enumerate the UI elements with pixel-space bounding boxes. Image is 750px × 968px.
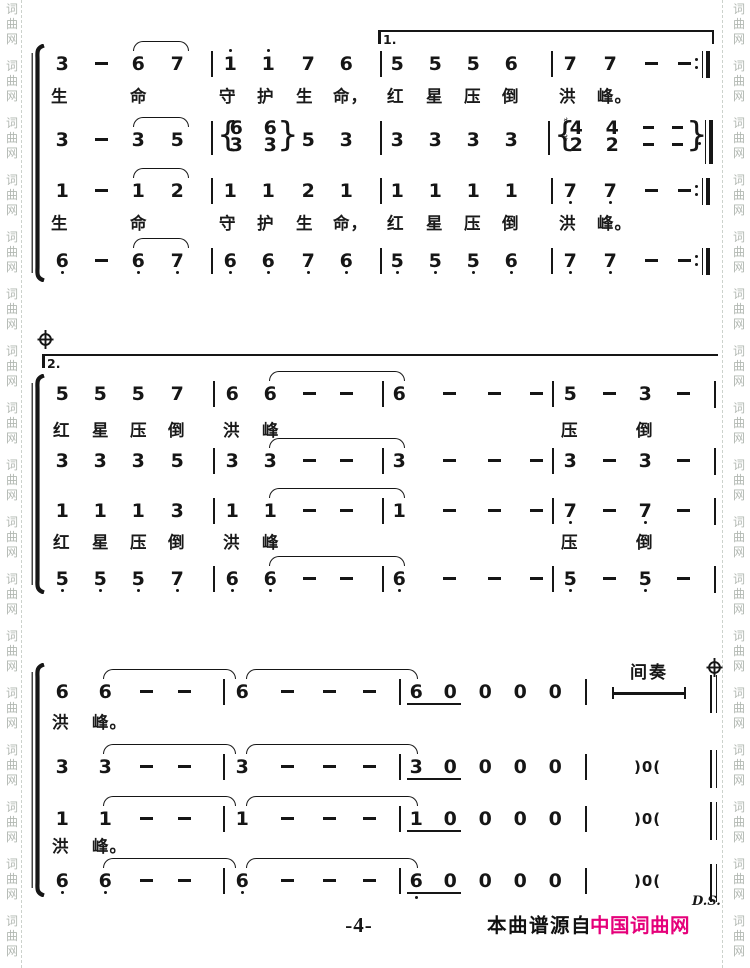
duration-dash — [323, 879, 336, 882]
note: 6 — [503, 252, 519, 271]
barline — [382, 448, 384, 474]
barline — [399, 754, 401, 780]
barline — [548, 121, 550, 155]
note: 3 — [54, 452, 70, 471]
chord-brace: } — [277, 118, 299, 152]
repeat-thick-bar — [709, 120, 714, 164]
final-thin-barline — [714, 448, 716, 475]
note: 7 — [562, 252, 578, 271]
volta-hook-left — [42, 354, 45, 368]
duration-dash — [323, 817, 336, 820]
note: 6 — [262, 570, 278, 589]
duration-dash — [645, 62, 658, 65]
duration-dash — [140, 817, 153, 820]
note: 1 — [465, 182, 481, 201]
note: 7 — [169, 570, 185, 589]
note: 6 — [503, 55, 519, 74]
tie-slur — [133, 238, 189, 248]
note: 6 — [224, 385, 240, 404]
barline — [399, 868, 401, 894]
interlude-cap — [684, 687, 686, 699]
duration-dash — [95, 62, 108, 65]
volta-bracket-line — [378, 30, 714, 32]
duration-dash — [303, 509, 316, 512]
note: 3 — [130, 131, 146, 150]
duration-dash — [363, 690, 376, 693]
octave-dot-below — [415, 896, 418, 899]
note: 0 — [512, 683, 528, 702]
note: 5 — [130, 385, 146, 404]
lyric-syllable: 压 — [561, 423, 579, 440]
note: 0 — [477, 872, 493, 891]
lyric-syllable: 压 — [464, 216, 482, 233]
note: 0 — [442, 872, 458, 891]
note: 3 — [338, 131, 354, 150]
note: 3 — [54, 55, 70, 74]
note: 6 — [224, 570, 240, 589]
barline — [552, 448, 554, 474]
duration-dash — [178, 765, 191, 768]
barline — [380, 51, 382, 77]
note: 3 — [562, 452, 578, 471]
note: 1 — [389, 182, 405, 201]
barline — [223, 806, 225, 832]
lyric-syllable: 峰。 — [597, 216, 632, 233]
note: 6 — [130, 252, 146, 271]
barline — [585, 806, 587, 832]
lyric-syllable: 红 — [387, 89, 405, 106]
note: 5 — [169, 452, 185, 471]
barline — [211, 248, 213, 274]
note: 1 — [234, 810, 250, 829]
note: 5 — [465, 55, 481, 74]
duration-dash — [323, 765, 336, 768]
duration-dash — [303, 459, 316, 462]
note: 1 — [260, 55, 276, 74]
octave-dot-below — [61, 891, 64, 894]
lyric-syllable: 红 — [53, 535, 71, 552]
lyric-syllable: 命 — [130, 216, 148, 233]
note: 5 — [637, 570, 653, 589]
note: 1 — [408, 810, 424, 829]
note: 0 — [442, 758, 458, 777]
octave-dot-below — [61, 589, 64, 592]
note: 3 — [465, 131, 481, 150]
octave-dot-below — [231, 589, 234, 592]
repeat-thick-bar — [706, 248, 711, 275]
note: 5 — [130, 570, 146, 589]
note: 1 — [222, 55, 238, 74]
note: 1 — [130, 182, 146, 201]
final-thin-barline — [714, 566, 716, 593]
lyric-syllable: 峰 — [262, 535, 280, 552]
note: 7 — [300, 55, 316, 74]
note: 3 — [54, 131, 70, 150]
note: 1 — [92, 502, 108, 521]
lyric-syllable: 压 — [561, 535, 579, 552]
tie-slur — [133, 168, 189, 178]
repeat-thin-bar — [702, 51, 704, 78]
note: 1 — [503, 182, 519, 201]
lyric-syllable: 星 — [92, 535, 110, 552]
note: 3 — [262, 452, 278, 471]
repeat-thick-bar — [706, 51, 711, 78]
barline — [551, 178, 553, 204]
duration-dash — [140, 879, 153, 882]
note: 6 — [54, 683, 70, 702]
tie-slur — [269, 438, 405, 448]
barline — [552, 381, 554, 407]
tie-slur — [246, 796, 418, 806]
tie-slur — [103, 744, 236, 754]
barline — [551, 248, 553, 274]
duration-dash — [488, 577, 501, 580]
barline — [399, 679, 401, 705]
lyric-syllable: 压 — [130, 535, 148, 552]
repeat-thin-bar — [702, 178, 704, 205]
duration-dash — [323, 690, 336, 693]
barline — [552, 498, 554, 524]
note: 3 — [92, 452, 108, 471]
note: 6 — [338, 252, 354, 271]
note: 0 — [512, 810, 528, 829]
score: 1.3671176555677生命守护生命，红星压倒洪峰。335{6363}53… — [0, 0, 750, 968]
duration-dash — [643, 143, 654, 146]
duration-dash — [340, 392, 353, 395]
note: 6 — [97, 683, 113, 702]
tie-slur — [133, 117, 189, 127]
note: 5 — [389, 252, 405, 271]
note: 7 — [562, 55, 578, 74]
octave-dot-below — [434, 271, 437, 274]
barline — [213, 498, 215, 524]
octave-dot-below — [609, 201, 612, 204]
duration-dash — [95, 189, 108, 192]
note: 7 — [637, 502, 653, 521]
duration-dash — [677, 392, 690, 395]
duration-dash — [443, 509, 456, 512]
note: 7 — [300, 252, 316, 271]
tie-slur — [269, 556, 405, 566]
note: 5 — [54, 385, 70, 404]
duration-dash — [443, 392, 456, 395]
repeat-dot — [695, 58, 698, 61]
note: 0 — [547, 872, 563, 891]
duration-dash — [140, 765, 153, 768]
note: 7 — [169, 55, 185, 74]
barline — [211, 51, 213, 77]
lyric-syllable: 生 — [51, 216, 69, 233]
note: 3 — [97, 758, 113, 777]
octave-dot-below — [99, 589, 102, 592]
note: 0 — [477, 683, 493, 702]
duration-dash — [678, 189, 691, 192]
note: 0 — [547, 758, 563, 777]
note: 2 — [300, 182, 316, 201]
note: 3 — [389, 131, 405, 150]
note: 5 — [92, 570, 108, 589]
octave-dot-below — [569, 271, 572, 274]
lyric-syllable: 洪 — [223, 535, 241, 552]
lyric-syllable: 洪 — [52, 839, 70, 856]
octave-dot-below — [609, 271, 612, 274]
lyric-syllable: 倒 — [168, 423, 186, 440]
lyric-syllable: 护 — [257, 89, 275, 106]
lyric-syllable: 峰。 — [597, 89, 632, 106]
tie-slur — [269, 371, 405, 381]
repeat-dot — [695, 193, 698, 196]
credit-prefix: 本曲谱源自 — [487, 916, 592, 937]
volta-hook-right — [712, 30, 715, 44]
instrumental-repeat-sign: )0( — [634, 873, 661, 889]
final-double-barline — [710, 675, 712, 713]
barline — [585, 868, 587, 894]
volta-label: 1. — [383, 33, 396, 46]
tie-slur — [133, 41, 189, 51]
note: 5 — [92, 385, 108, 404]
note: 1 — [54, 502, 70, 521]
barline — [585, 679, 587, 705]
lyric-syllable: 倒 — [636, 535, 654, 552]
duration-dash — [677, 459, 690, 462]
note: 3 — [408, 758, 424, 777]
octave-dot-below — [345, 271, 348, 274]
note: 5 — [562, 570, 578, 589]
barline — [552, 566, 554, 592]
lyric-syllable: 守 — [219, 89, 237, 106]
lyric-syllable: 倒 — [168, 535, 186, 552]
note: 1 — [427, 182, 443, 201]
note: 6 — [391, 385, 407, 404]
repeat-thin-bar — [705, 120, 707, 164]
note: 5 — [465, 252, 481, 271]
interlude-line — [612, 692, 686, 695]
lyric-syllable: 命， — [333, 216, 368, 233]
duration-dash — [678, 259, 691, 262]
duration-dash — [281, 690, 294, 693]
lyric-syllable: 星 — [426, 89, 444, 106]
note: 3 — [234, 758, 250, 777]
system-brace — [30, 44, 48, 282]
barline — [211, 178, 213, 204]
note: 6 — [97, 872, 113, 891]
note: 3 — [427, 131, 443, 150]
note: 5 — [300, 131, 316, 150]
lyric-syllable: 命 — [130, 89, 148, 106]
system-brace — [30, 663, 48, 897]
lyric-syllable: 倒 — [502, 89, 520, 106]
octave-dot-below — [569, 521, 572, 524]
lyric-syllable: 红 — [387, 216, 405, 233]
note: 3 — [637, 385, 653, 404]
note: 7 — [602, 252, 618, 271]
barline — [380, 178, 382, 204]
note: 5 — [562, 385, 578, 404]
note: 6 — [54, 872, 70, 891]
duration-dash — [677, 509, 690, 512]
lyric-syllable: 压 — [130, 423, 148, 440]
note: 3 — [224, 452, 240, 471]
octave-dot-below — [267, 271, 270, 274]
note: 7 — [602, 55, 618, 74]
barline — [382, 498, 384, 524]
note: 7 — [562, 182, 578, 201]
interlude-label: 间奏 — [609, 664, 689, 682]
octave-dot-below — [104, 891, 107, 894]
note: 1 — [260, 182, 276, 201]
barline — [223, 754, 225, 780]
note: 5 — [389, 55, 405, 74]
note: 1 — [224, 502, 240, 521]
credit-site-name: 中国词曲网 — [590, 916, 690, 937]
octave-dot-below — [137, 589, 140, 592]
octave-dot-below — [269, 589, 272, 592]
tie-slur — [246, 858, 418, 868]
note: 1 — [391, 502, 407, 521]
note: 3 — [54, 758, 70, 777]
octave-dot-below — [176, 271, 179, 274]
duration-dash — [363, 765, 376, 768]
duration-dash — [643, 126, 654, 129]
note: 0 — [547, 683, 563, 702]
note: 1 — [54, 182, 70, 201]
sheet-music-page: 词曲网词曲网词曲网词曲网词曲网词曲网词曲网词曲网词曲网词曲网词曲网词曲网词曲网词… — [0, 0, 750, 968]
duration-dash — [281, 817, 294, 820]
duration-dash — [363, 817, 376, 820]
tie-slur — [103, 858, 236, 868]
note: 2 — [169, 182, 185, 201]
duration-dash — [488, 392, 501, 395]
note: 6 — [391, 570, 407, 589]
final-double-barline — [710, 864, 712, 902]
barline — [211, 121, 213, 155]
duration-dash — [281, 879, 294, 882]
instrumental-repeat-sign: )0( — [634, 811, 661, 827]
duration-dash — [303, 577, 316, 580]
coda-icon — [705, 657, 724, 678]
duration-dash — [672, 143, 683, 146]
duration-dash — [488, 459, 501, 462]
barline — [213, 566, 215, 592]
lyric-syllable: 压 — [464, 89, 482, 106]
note: 5 — [169, 131, 185, 150]
final-double-barline — [710, 750, 712, 788]
lyric-syllable: 守 — [219, 216, 237, 233]
duration-dash — [603, 459, 616, 462]
coda-icon — [36, 329, 55, 350]
duration-dash — [178, 879, 191, 882]
barline — [380, 248, 382, 274]
octave-dot-below — [510, 271, 513, 274]
duration-dash — [530, 509, 543, 512]
barline — [382, 566, 384, 592]
lyric-syllable: 倒 — [636, 423, 654, 440]
octave-dot-below — [61, 271, 64, 274]
repeat-dot — [695, 185, 698, 188]
page-number: -4- — [327, 913, 391, 937]
duration-dash — [530, 392, 543, 395]
octave-dot-below — [176, 589, 179, 592]
duration-dash — [678, 62, 691, 65]
duration-dash — [530, 577, 543, 580]
repeat-dot — [695, 255, 698, 258]
octave-dot-below — [241, 891, 244, 894]
duration-dash — [95, 138, 108, 141]
octave-dot-below — [569, 589, 572, 592]
note: 0 — [442, 683, 458, 702]
repeat-thin-bar — [702, 248, 704, 275]
note: 6 — [408, 683, 424, 702]
note: 6 — [130, 55, 146, 74]
note: 1 — [97, 810, 113, 829]
volta-hook-left — [378, 30, 381, 44]
barline — [223, 868, 225, 894]
duration-dash — [95, 259, 108, 262]
repeat-dot — [695, 263, 698, 266]
chord-note: 2 — [568, 136, 584, 155]
note: 1 — [222, 182, 238, 201]
duration-dash — [603, 509, 616, 512]
octave-dot-below — [644, 521, 647, 524]
volta-bracket-line — [42, 354, 718, 356]
barline — [213, 381, 215, 407]
volta-label: 2. — [47, 357, 60, 370]
note: 3 — [503, 131, 519, 150]
note: 6 — [234, 872, 250, 891]
barline — [551, 51, 553, 77]
final-double-barline — [716, 675, 718, 713]
lyric-syllable: 命， — [333, 89, 368, 106]
tie-slur — [103, 796, 236, 806]
note: 6 — [338, 55, 354, 74]
note: 3 — [130, 452, 146, 471]
chord-note: 2 — [604, 136, 620, 155]
note: 5 — [427, 252, 443, 271]
note: 0 — [477, 810, 493, 829]
note: 7 — [562, 502, 578, 521]
note: 3 — [169, 502, 185, 521]
repeat-thick-bar — [706, 178, 711, 205]
note: 5 — [54, 570, 70, 589]
note: 3 — [391, 452, 407, 471]
note: 0 — [442, 810, 458, 829]
octave-dot-below — [396, 271, 399, 274]
note: 6 — [262, 385, 278, 404]
lyric-syllable: 峰。 — [92, 839, 127, 856]
note: 6 — [222, 252, 238, 271]
lyric-syllable: 倒 — [502, 216, 520, 233]
lyric-syllable: 峰。 — [92, 715, 127, 732]
duration-dash — [488, 509, 501, 512]
duration-dash — [443, 459, 456, 462]
lyric-syllable: 星 — [92, 423, 110, 440]
duration-dash — [672, 126, 683, 129]
final-double-barline — [716, 750, 718, 788]
final-double-barline — [716, 802, 718, 840]
final-thin-barline — [714, 498, 716, 525]
note: 0 — [477, 758, 493, 777]
lyric-syllable: 生 — [51, 89, 69, 106]
barline — [380, 121, 382, 155]
octave-dot-below — [398, 589, 401, 592]
duration-dash — [677, 577, 690, 580]
octave-dot-below — [644, 589, 647, 592]
note: 7 — [602, 182, 618, 201]
duration-dash — [340, 509, 353, 512]
duration-dash — [303, 392, 316, 395]
note: 7 — [169, 252, 185, 271]
barline — [399, 806, 401, 832]
